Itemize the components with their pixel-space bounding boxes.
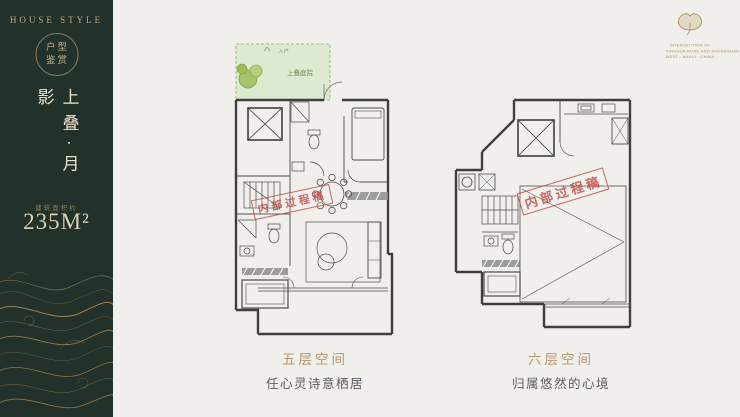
interior-walls [236,100,388,266]
gold-wave-art [0,257,113,417]
bathroom-upper [291,102,324,176]
floorplan-sixth-floor: 内部过程稿 [452,92,642,332]
emblem-line-1: 户型 [44,42,69,54]
logo-tagline: INTERSECTION OF XINGHUA ROAD AND ZHONGSH… [666,43,715,61]
caption-title: 六层空间 [486,348,636,368]
bed [352,108,384,160]
toilet-tank [268,224,280,229]
sidebar: HOUSE STYLE 户型 鉴赏 上叠·月影 建筑面积约 235M² [0,0,113,417]
sink-icon [578,104,594,112]
caption-title: 五层空间 [240,348,390,368]
laundry [459,174,495,190]
emblem-line-2: 鉴赏 [44,55,69,67]
closet-hatch [242,268,288,275]
emblem-seal: 户型 鉴赏 [35,33,78,76]
caption-fifth-floor: 五层空间 任心灵诗意栖居 [240,348,390,392]
toilet-tank [502,234,514,239]
floorplan-sixth-floor-drawing [452,92,642,332]
caption-sixth-floor: 六层空间 归属悠然的心境 [486,348,636,392]
sofa [368,222,381,278]
courtyard: 入户 上叠庭院 [236,44,330,100]
stove-icon [602,104,615,112]
house-style-poster: { "sidebar": { "brand": "HOUSE STYLE", "… [0,0,740,417]
ginkgo-leaf-icon [674,10,706,36]
product-name: 上叠·月影 [32,88,82,200]
wardrobe-hatch [346,192,388,200]
caption-subtitle: 任心灵诗意栖居 [240,373,390,392]
door-arc [348,170,360,182]
vanity [484,236,498,246]
brand-title: HOUSE STYLE [0,15,113,25]
bathroom-lower [238,220,280,256]
area-value: 235M² [0,209,113,235]
vanity [240,246,254,256]
elevator [518,120,554,156]
courtyard-entry-label: 入户 [278,47,289,55]
elevator [248,108,282,140]
balcony-window [544,298,630,307]
equipment-box [484,272,520,296]
shower-icon [238,220,256,238]
caption-subtitle: 归属悠然的心境 [486,373,636,392]
pillow [355,111,381,118]
tagline-line-3: WEST · ANHUI · CHINA [666,55,715,61]
toilet-tank [308,130,320,135]
toilet-icon [269,229,279,243]
toilet-icon [503,240,513,254]
bedroom [348,108,384,182]
toilet-icon [309,135,319,149]
bathroom [482,232,518,254]
sink-icon [292,162,304,171]
door-arc [310,162,324,176]
kitchen [564,104,628,144]
door-arc [560,142,574,156]
floorplan-fifth-floor: 入户 上叠庭院 [228,42,394,342]
equipment-box [242,280,288,308]
stairs-icon [482,196,518,224]
rug [317,233,347,263]
courtyard-label: 上叠庭院 [287,68,314,77]
developer-logo: INTERSECTION OF XINGHUA ROAD AND ZHONGSH… [648,10,732,73]
closet-hatch [482,260,520,267]
interior-walls [560,100,574,156]
living-room [306,222,381,282]
washer-icon [459,174,475,190]
